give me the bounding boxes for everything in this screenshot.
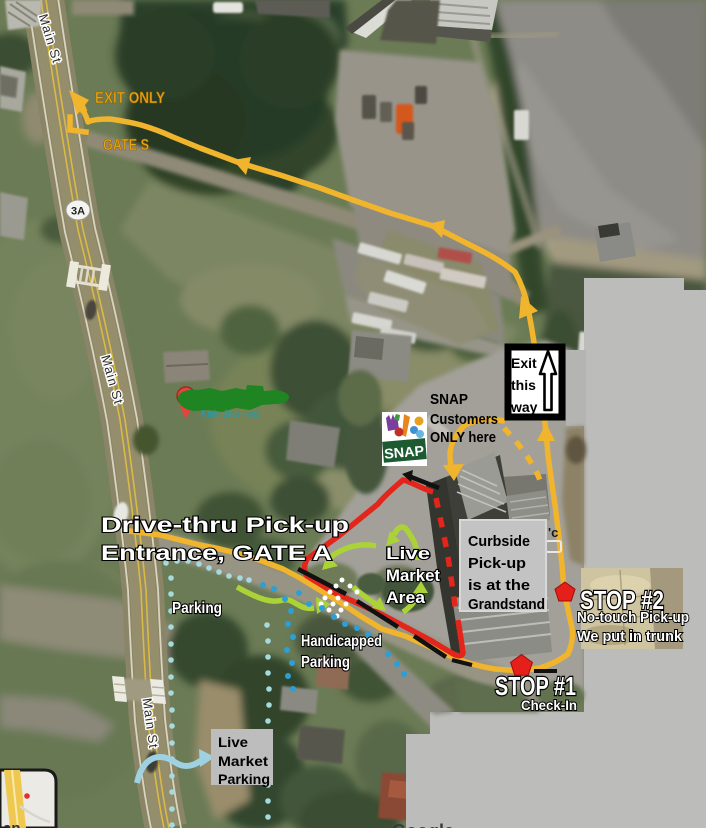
svg-text:Google: Google (392, 821, 454, 828)
svg-text:Handicapped: Handicapped (301, 633, 382, 650)
svg-text:Parking: Parking (301, 654, 350, 671)
svg-text:Market: Market (386, 566, 440, 585)
svg-text:GATE S: GATE S (103, 137, 149, 154)
svg-text:Area: Area (386, 588, 426, 607)
svg-text:8 min drive - wal: 8 min drive - wal (201, 409, 259, 420)
svg-text:Market: Market (218, 753, 268, 769)
svg-text:Parking: Parking (218, 771, 270, 787)
svg-text:We put in trunk: We put in trunk (577, 628, 683, 645)
svg-text:this: this (511, 377, 536, 393)
svg-text:3A: 3A (71, 206, 85, 218)
svg-text:Exit: Exit (511, 355, 537, 371)
svg-text:Curbside: Curbside (468, 533, 530, 550)
svg-text:Entrance, GATE A: Entrance, GATE A (101, 542, 332, 565)
svg-text:'c: 'c (548, 525, 558, 540)
svg-text:Customers: Customers (430, 411, 498, 428)
svg-text:Drive-thru Pick-up: Drive-thru Pick-up (101, 514, 349, 537)
svg-text:Live: Live (218, 734, 248, 750)
svg-text:Check-In: Check-In (521, 697, 577, 713)
svg-text:SNAP: SNAP (430, 391, 468, 408)
svg-text:Grandstand: Grandstand (468, 596, 545, 613)
svg-text:EXIT ONLY: EXIT ONLY (95, 90, 165, 107)
svg-text:ONLY here: ONLY here (430, 429, 496, 446)
svg-text:No-touch Pick-up: No-touch Pick-up (577, 609, 689, 626)
svg-text:Pick-up: Pick-up (468, 555, 526, 572)
svg-text:way: way (510, 399, 538, 415)
svg-text:Parking: Parking (172, 600, 222, 617)
svg-text:is at the: is at the (468, 577, 530, 594)
svg-text:an: an (3, 820, 21, 828)
svg-text:Live: Live (386, 544, 430, 563)
